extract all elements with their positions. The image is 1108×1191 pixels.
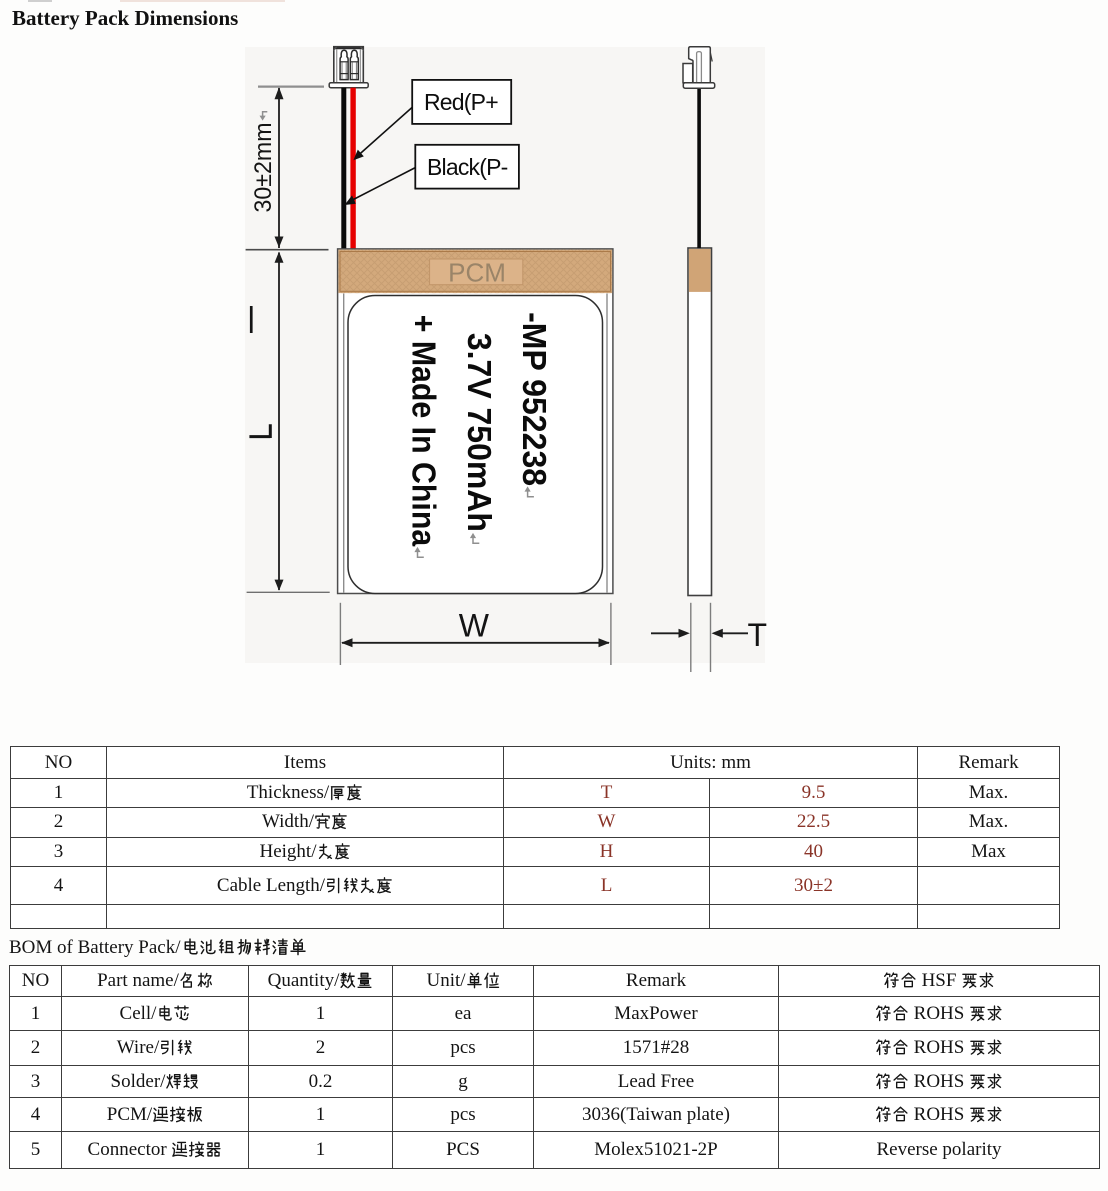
- svg-text:Red(P+: Red(P+: [424, 89, 498, 115]
- svg-text:T: T: [748, 617, 768, 653]
- svg-text:W: W: [459, 608, 490, 644]
- svg-text:+ Made In China: + Made In China: [405, 315, 442, 547]
- svg-text:-MP 952238: -MP 952238: [516, 312, 553, 486]
- svg-text:3.7V 750mAh: 3.7V 750mAh: [461, 333, 498, 532]
- svg-text:30±2mm: 30±2mm: [250, 123, 277, 213]
- svg-text:PCM: PCM: [448, 258, 506, 288]
- svg-text:Black(P-: Black(P-: [427, 154, 508, 180]
